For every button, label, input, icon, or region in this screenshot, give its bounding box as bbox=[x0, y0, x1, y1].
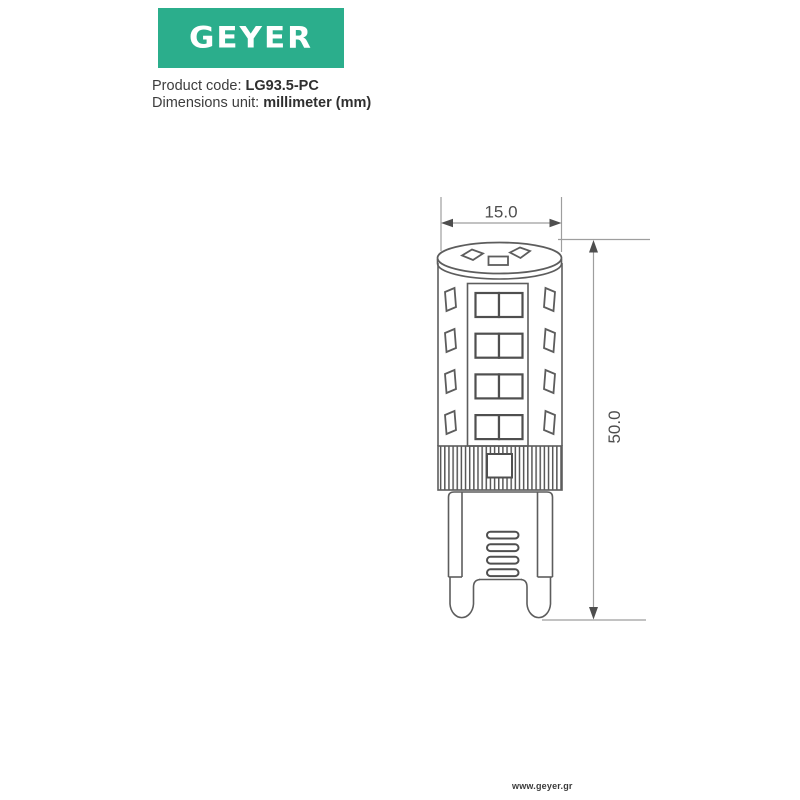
product-info: Product code: LG93.5-PC Dimensions unit:… bbox=[152, 78, 371, 112]
width-arrow-left bbox=[441, 219, 453, 228]
dimensions-unit-value: millimeter (mm) bbox=[263, 95, 371, 111]
cap-ellipse bbox=[438, 243, 562, 274]
width-arrow-right bbox=[550, 219, 562, 228]
website-url: www.geyer.gr bbox=[512, 781, 573, 791]
dimensions-unit-row: Dimensions unit: millimeter (mm) bbox=[152, 95, 371, 112]
g9-base bbox=[449, 492, 553, 580]
width-dimension-label: 15.0 bbox=[484, 203, 517, 222]
height-arrow-bottom bbox=[589, 607, 598, 620]
datasheet-page: GEYER Product code: LG93.5-PC Dimensions… bbox=[0, 0, 800, 800]
lamp-outline bbox=[438, 243, 563, 618]
pin-right bbox=[521, 577, 551, 618]
height-dimension: 50.0 bbox=[542, 240, 650, 621]
product-code-row: Product code: LG93.5-PC bbox=[152, 78, 371, 95]
g9-pins bbox=[450, 577, 551, 618]
product-code-value: LG93.5-PC bbox=[246, 78, 319, 94]
height-arrow-top bbox=[589, 240, 598, 253]
geyer-logo: GEYER bbox=[158, 8, 344, 68]
led-panel bbox=[468, 284, 529, 447]
product-code-label: Product code: bbox=[152, 78, 246, 94]
pin-left bbox=[450, 577, 480, 618]
geyer-logo-text: GEYER bbox=[189, 21, 313, 55]
heatsink-ribs bbox=[438, 446, 562, 490]
height-dimension-label: 50.0 bbox=[605, 410, 624, 443]
dimensions-unit-label: Dimensions unit: bbox=[152, 95, 263, 111]
dimension-drawing: 15.0 50.0 bbox=[400, 160, 700, 660]
lamp-top-cap bbox=[438, 243, 562, 280]
rib-band-notch bbox=[487, 454, 512, 478]
